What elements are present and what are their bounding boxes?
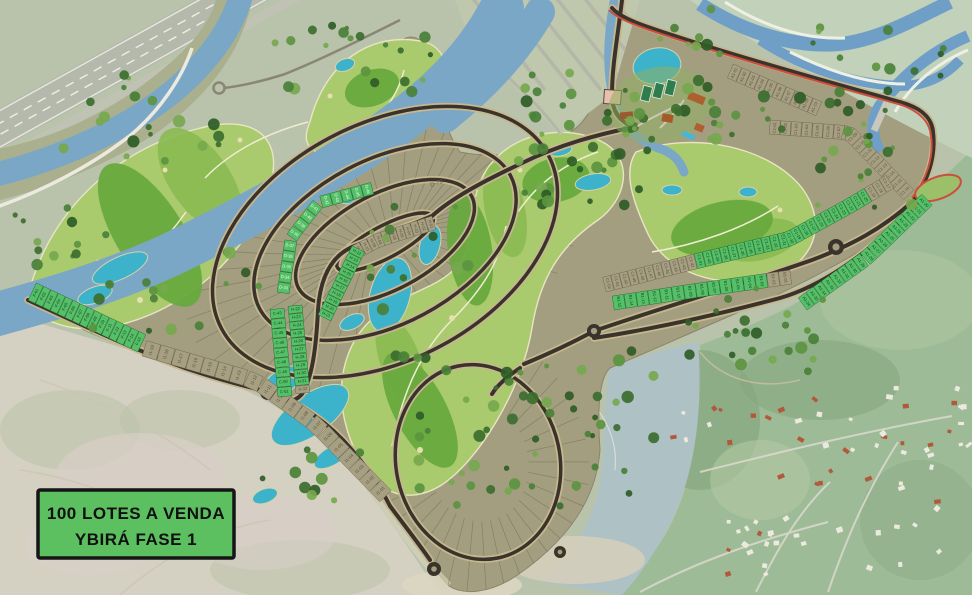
tree bbox=[286, 36, 295, 45]
house bbox=[816, 411, 822, 417]
tree bbox=[702, 82, 712, 92]
tree bbox=[693, 323, 699, 329]
tree bbox=[519, 391, 528, 400]
tree bbox=[398, 351, 409, 362]
house bbox=[727, 440, 733, 446]
house bbox=[901, 441, 905, 445]
tree bbox=[626, 490, 633, 497]
tree bbox=[804, 327, 811, 334]
tree bbox=[522, 190, 528, 196]
tree bbox=[127, 135, 139, 147]
tree bbox=[565, 391, 574, 400]
tree bbox=[224, 247, 236, 259]
tree bbox=[740, 315, 750, 325]
tree bbox=[691, 41, 701, 51]
tree bbox=[530, 111, 541, 122]
tree bbox=[556, 502, 563, 509]
tree bbox=[453, 204, 458, 209]
tree bbox=[413, 353, 422, 362]
tree bbox=[382, 235, 390, 243]
lot-label: C-46 bbox=[275, 340, 285, 346]
tree bbox=[429, 232, 438, 241]
tree bbox=[716, 50, 723, 57]
tree bbox=[34, 238, 42, 246]
tree bbox=[843, 126, 853, 136]
lot-label: H-32 bbox=[298, 386, 308, 392]
tree bbox=[619, 200, 630, 211]
tree bbox=[370, 230, 375, 235]
tree bbox=[148, 132, 153, 137]
tree bbox=[804, 367, 812, 375]
tree bbox=[815, 202, 821, 208]
tree bbox=[520, 83, 530, 93]
tree bbox=[613, 424, 620, 431]
tree bbox=[627, 346, 637, 356]
tree bbox=[843, 106, 853, 116]
lot-label: H-25 bbox=[293, 330, 303, 336]
tree bbox=[783, 310, 791, 318]
house bbox=[934, 499, 941, 504]
tree bbox=[748, 347, 756, 355]
tree bbox=[861, 121, 867, 127]
tree bbox=[729, 352, 736, 359]
tree bbox=[539, 132, 544, 137]
tree bbox=[828, 146, 838, 156]
tree bbox=[86, 98, 95, 107]
tree bbox=[488, 400, 500, 412]
lot-label: H-27 bbox=[295, 346, 305, 352]
tree bbox=[735, 359, 747, 371]
tree bbox=[473, 430, 485, 442]
tree bbox=[166, 324, 177, 335]
tree bbox=[366, 264, 374, 272]
tree bbox=[31, 259, 42, 270]
tree bbox=[49, 251, 59, 261]
house bbox=[894, 386, 899, 391]
tree bbox=[648, 136, 655, 143]
tree bbox=[541, 397, 552, 408]
tree bbox=[283, 81, 294, 92]
tree bbox=[816, 29, 821, 34]
tree bbox=[453, 501, 461, 509]
tree bbox=[216, 142, 222, 148]
map-canvas: F-01F-02F-03F-04F-05F-06F-07F-08F-09F-10… bbox=[0, 0, 972, 595]
tree bbox=[782, 322, 789, 329]
tree bbox=[483, 427, 490, 434]
tree bbox=[208, 118, 220, 130]
tree bbox=[701, 39, 713, 51]
tree bbox=[406, 86, 417, 97]
tree bbox=[707, 136, 714, 143]
lot-label: H-28 bbox=[295, 354, 305, 360]
tree bbox=[414, 455, 425, 466]
tree bbox=[614, 148, 626, 160]
tree bbox=[795, 342, 807, 354]
tree bbox=[884, 63, 895, 74]
tree bbox=[415, 483, 425, 493]
tree bbox=[591, 162, 603, 174]
tree bbox=[733, 328, 739, 334]
tree bbox=[674, 108, 682, 116]
tree bbox=[486, 485, 495, 494]
tree bbox=[623, 88, 628, 93]
tree bbox=[577, 166, 583, 172]
lot-label: H-31 bbox=[298, 378, 308, 384]
legend-line-2: YBIRÁ FASE 1 bbox=[75, 530, 197, 549]
tree bbox=[612, 399, 619, 406]
tree bbox=[883, 147, 893, 157]
tree bbox=[741, 328, 750, 337]
tree bbox=[367, 273, 375, 281]
house bbox=[751, 414, 756, 418]
tree bbox=[567, 156, 577, 166]
tree bbox=[794, 92, 806, 104]
tree bbox=[64, 204, 72, 212]
tree bbox=[441, 365, 451, 375]
tree bbox=[260, 476, 266, 482]
tree bbox=[468, 460, 480, 472]
tree bbox=[306, 452, 318, 464]
tree bbox=[148, 96, 158, 106]
tree bbox=[420, 77, 426, 83]
tree bbox=[649, 371, 659, 381]
tree bbox=[514, 156, 524, 166]
tree bbox=[509, 478, 520, 489]
tree bbox=[307, 490, 317, 500]
tree bbox=[566, 89, 577, 100]
house bbox=[794, 533, 800, 537]
house bbox=[762, 563, 768, 568]
tree bbox=[588, 142, 598, 152]
house bbox=[898, 562, 903, 567]
tree bbox=[361, 66, 371, 76]
lot-label: C1-06 bbox=[825, 125, 831, 137]
lot-label: C1-05 bbox=[814, 124, 820, 136]
tree bbox=[67, 217, 77, 227]
tree bbox=[670, 24, 679, 33]
tree bbox=[604, 109, 612, 117]
tree bbox=[883, 108, 888, 113]
tree bbox=[255, 283, 262, 290]
tree bbox=[577, 365, 587, 375]
tree bbox=[592, 415, 598, 421]
tree bbox=[884, 86, 893, 95]
tree bbox=[459, 470, 465, 476]
tree bbox=[570, 405, 577, 412]
tree bbox=[872, 205, 877, 210]
tree bbox=[428, 52, 433, 57]
tree bbox=[635, 185, 643, 193]
lot-label: C-43 bbox=[273, 310, 283, 316]
tree bbox=[198, 141, 208, 151]
tree bbox=[150, 295, 158, 303]
tree bbox=[938, 73, 944, 79]
tree bbox=[338, 27, 349, 38]
tree bbox=[751, 328, 762, 339]
tree bbox=[415, 432, 424, 441]
tree bbox=[241, 268, 250, 277]
tree bbox=[290, 467, 302, 479]
tree bbox=[89, 324, 98, 333]
house bbox=[876, 530, 881, 536]
tree bbox=[724, 331, 731, 338]
legend: 100 LOTES A VENDA YBIRÁ FASE 1 bbox=[38, 490, 234, 558]
tree bbox=[592, 463, 599, 470]
tree bbox=[425, 428, 431, 434]
tree bbox=[866, 133, 873, 140]
tree bbox=[400, 77, 410, 87]
tree bbox=[13, 212, 18, 217]
tree bbox=[622, 126, 628, 132]
tree bbox=[585, 431, 591, 437]
tree bbox=[542, 195, 554, 207]
tree bbox=[643, 147, 651, 155]
tree bbox=[308, 26, 317, 35]
tree bbox=[21, 218, 26, 223]
tree bbox=[385, 225, 395, 235]
tree bbox=[693, 75, 704, 86]
tree bbox=[872, 63, 881, 72]
tree bbox=[146, 124, 152, 130]
tree bbox=[160, 284, 169, 293]
tree bbox=[602, 116, 612, 126]
tree bbox=[96, 117, 104, 125]
tree bbox=[419, 31, 430, 42]
tree bbox=[906, 199, 918, 211]
tree bbox=[629, 92, 640, 103]
tree bbox=[784, 347, 792, 355]
tree bbox=[356, 448, 364, 456]
tree bbox=[938, 51, 944, 57]
tree bbox=[560, 102, 567, 109]
tree bbox=[386, 265, 395, 274]
lot-label: C-45 bbox=[274, 330, 284, 336]
tree bbox=[517, 370, 523, 376]
tree bbox=[142, 278, 151, 287]
tree bbox=[400, 274, 407, 281]
tree bbox=[724, 295, 732, 303]
tree bbox=[621, 468, 627, 474]
tree bbox=[356, 32, 365, 41]
tree bbox=[412, 253, 417, 258]
tree bbox=[224, 281, 229, 286]
tree bbox=[758, 90, 770, 102]
tree bbox=[146, 328, 152, 334]
tree bbox=[494, 385, 499, 390]
tree bbox=[821, 156, 827, 162]
tree bbox=[778, 125, 785, 132]
tree bbox=[596, 420, 606, 430]
tree bbox=[466, 481, 475, 490]
tree bbox=[819, 296, 826, 303]
tree bbox=[272, 39, 279, 46]
tree bbox=[713, 308, 719, 314]
lot-label: C1-07 bbox=[836, 126, 842, 138]
tree bbox=[173, 115, 185, 127]
lot-label: C-49 bbox=[278, 369, 288, 375]
tree bbox=[760, 107, 765, 112]
tree bbox=[416, 412, 424, 420]
tree bbox=[564, 120, 575, 131]
tree bbox=[613, 354, 625, 366]
tree bbox=[74, 241, 81, 248]
house bbox=[727, 520, 731, 524]
tree bbox=[316, 473, 328, 485]
lot-label: H-23 bbox=[292, 314, 302, 320]
tree bbox=[648, 432, 659, 443]
lot-label: C1-03 bbox=[793, 123, 799, 135]
tree bbox=[765, 116, 771, 122]
tree bbox=[815, 163, 826, 174]
tree bbox=[625, 116, 635, 126]
tree bbox=[533, 87, 542, 96]
tree bbox=[463, 396, 470, 403]
masterplan-map: F-01F-02F-03F-04F-05F-06F-07F-08F-09F-10… bbox=[0, 0, 972, 595]
tree bbox=[685, 319, 692, 326]
tree bbox=[729, 132, 735, 138]
tree bbox=[532, 435, 539, 442]
tree bbox=[825, 98, 836, 109]
tree bbox=[521, 95, 533, 107]
lot-label: C-48 bbox=[277, 359, 287, 365]
tree bbox=[769, 356, 777, 364]
tree bbox=[449, 479, 455, 485]
tree bbox=[323, 43, 328, 48]
tree bbox=[810, 40, 815, 45]
tree bbox=[682, 83, 694, 95]
tree bbox=[864, 168, 872, 176]
tree bbox=[622, 391, 634, 403]
tree bbox=[347, 35, 353, 41]
tree bbox=[634, 108, 646, 120]
tree bbox=[753, 286, 759, 292]
tree bbox=[102, 231, 109, 238]
lot-label: H-26 bbox=[294, 338, 304, 344]
tree bbox=[149, 286, 158, 295]
house bbox=[961, 404, 967, 409]
tree bbox=[808, 333, 819, 344]
tree bbox=[124, 153, 130, 159]
tree bbox=[716, 121, 723, 128]
tree bbox=[572, 481, 582, 491]
tree bbox=[632, 126, 637, 131]
tree bbox=[731, 111, 740, 120]
tree bbox=[391, 203, 399, 211]
tree bbox=[501, 367, 513, 379]
tree bbox=[587, 198, 593, 204]
lot-label: C-47 bbox=[276, 349, 286, 355]
tree bbox=[856, 100, 865, 109]
house bbox=[951, 401, 957, 405]
tree bbox=[695, 33, 703, 41]
lot-label: H-30 bbox=[297, 370, 307, 376]
tree bbox=[121, 85, 126, 90]
tree bbox=[161, 157, 169, 165]
tree bbox=[377, 303, 389, 315]
lot-label: C-50 bbox=[279, 379, 289, 385]
tree bbox=[304, 446, 311, 453]
tree bbox=[507, 414, 518, 425]
tree bbox=[529, 483, 535, 489]
lot-label: H-24 bbox=[292, 322, 302, 328]
tree bbox=[529, 72, 536, 79]
house bbox=[774, 541, 780, 546]
house bbox=[899, 481, 903, 485]
lot-label: C-51 bbox=[280, 388, 290, 394]
tree bbox=[911, 67, 919, 75]
tree bbox=[527, 392, 539, 404]
tree bbox=[858, 173, 864, 179]
lot-label: C1-01 bbox=[771, 121, 777, 133]
tree bbox=[544, 364, 549, 369]
tree bbox=[195, 321, 204, 330]
tree bbox=[707, 5, 716, 14]
lot-label: H-22 bbox=[291, 306, 301, 312]
tree bbox=[834, 87, 844, 97]
tree bbox=[532, 451, 538, 457]
tree bbox=[883, 25, 893, 35]
tree bbox=[593, 392, 603, 402]
tree bbox=[709, 106, 721, 118]
tree bbox=[462, 260, 473, 271]
tree bbox=[119, 70, 129, 80]
house bbox=[903, 404, 909, 409]
lot-label: C1-04 bbox=[803, 124, 809, 136]
tree bbox=[452, 262, 464, 274]
tree bbox=[657, 36, 663, 42]
tree bbox=[93, 293, 104, 304]
house bbox=[958, 422, 964, 426]
tree bbox=[398, 47, 404, 53]
tree bbox=[72, 249, 81, 258]
tree bbox=[383, 42, 388, 47]
lot-label: C-44 bbox=[273, 320, 283, 326]
tree bbox=[837, 54, 844, 61]
tree bbox=[331, 497, 337, 503]
tree bbox=[105, 280, 114, 289]
legend-line-1: 100 LOTES A VENDA bbox=[47, 504, 225, 523]
tree bbox=[34, 246, 42, 254]
tree bbox=[537, 143, 548, 154]
tree bbox=[810, 356, 817, 363]
tree bbox=[59, 143, 69, 153]
tree bbox=[684, 349, 694, 359]
tree bbox=[504, 466, 509, 471]
tree bbox=[213, 131, 224, 142]
tree bbox=[370, 78, 379, 87]
tree bbox=[545, 409, 554, 418]
tree bbox=[130, 91, 140, 101]
tree bbox=[864, 139, 869, 144]
tree bbox=[328, 22, 336, 30]
tree bbox=[708, 98, 715, 105]
tree bbox=[686, 42, 691, 47]
house bbox=[818, 481, 823, 486]
tree bbox=[565, 69, 574, 78]
lot-label: H-29 bbox=[296, 362, 306, 368]
